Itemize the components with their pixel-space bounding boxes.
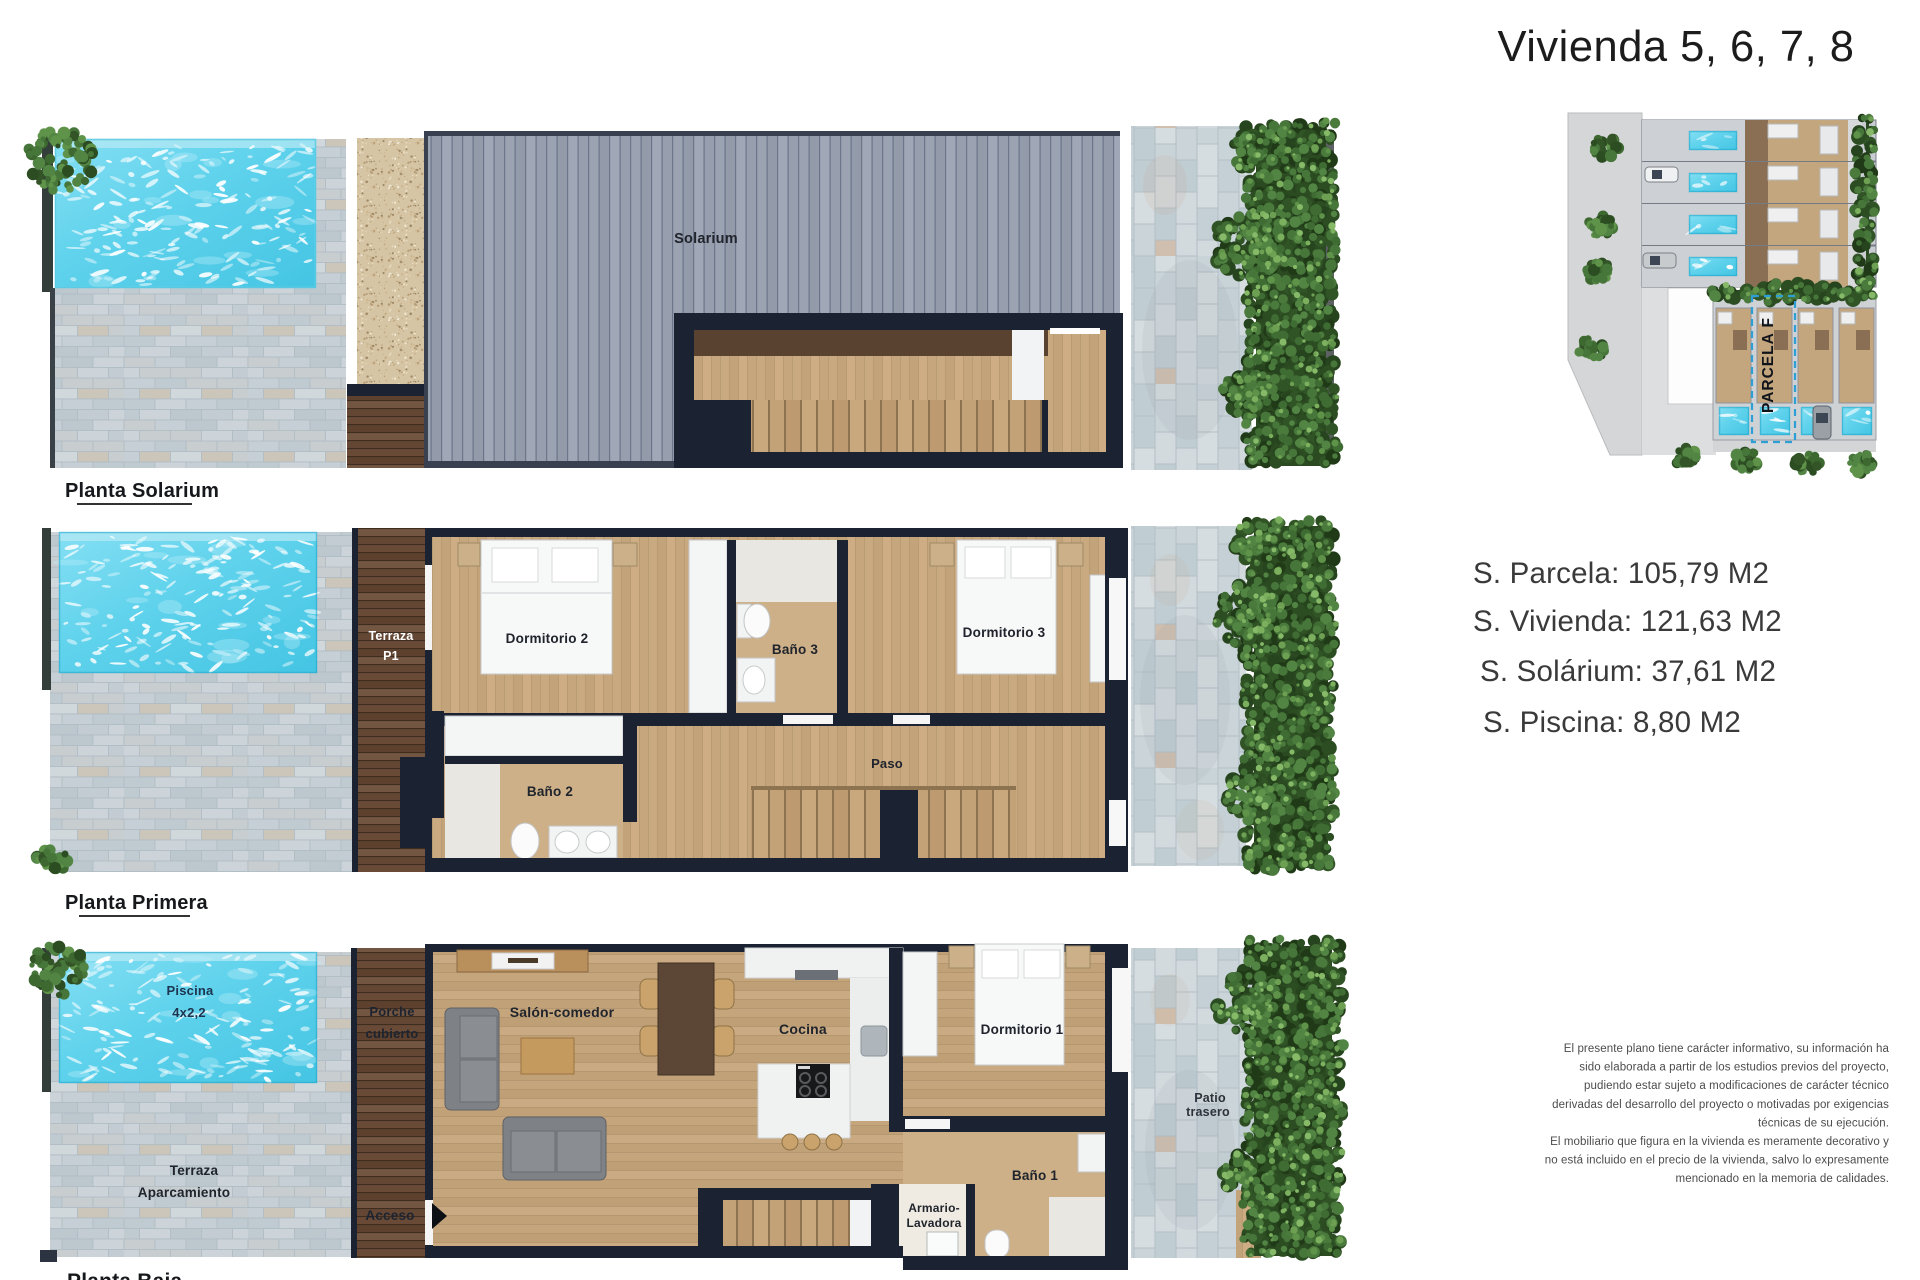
svg-text:Vivienda 5, 6, 7, 8: Vivienda 5, 6, 7, 8 [1498, 23, 1855, 71]
svg-text:Baño 1: Baño 1 [1012, 1168, 1059, 1183]
svg-text:S. Parcela: 105,79 M2: S. Parcela: 105,79 M2 [1473, 557, 1769, 590]
svg-text:Dormitorio 1: Dormitorio 1 [981, 1022, 1064, 1037]
svg-text:El mobiliario que figura en la: El mobiliario que figura en la vivienda … [1550, 1136, 1889, 1148]
svg-text:Dormitorio 3: Dormitorio 3 [963, 625, 1046, 640]
svg-text:Acceso: Acceso [365, 1208, 414, 1223]
svg-text:Paso: Paso [871, 756, 903, 771]
svg-text:Salón-comedor: Salón-comedor [510, 1004, 615, 1020]
svg-text:Porche: Porche [369, 1004, 414, 1019]
svg-text:derivadas del desarrollo del p: derivadas del desarrollo del proyecto o … [1552, 1099, 1889, 1111]
svg-text:P1: P1 [383, 649, 399, 663]
svg-text:mencionado en la memoria de ca: mencionado en la memoria de calidades. [1676, 1173, 1889, 1185]
svg-text:Lavadora: Lavadora [907, 1216, 962, 1230]
svg-text:pudiendo estar sujeto a modifi: pudiendo estar sujeto a modificaciones d… [1584, 1080, 1889, 1092]
svg-text:El presente plano tiene caráct: El presente plano tiene carácter informa… [1564, 1043, 1890, 1055]
svg-text:Armario-: Armario- [908, 1201, 960, 1215]
svg-text:PARCELA F: PARCELA F [1760, 317, 1777, 413]
svg-text:Baño 2: Baño 2 [527, 784, 573, 799]
svg-text:S. Vivienda: 121,63 M2: S. Vivienda: 121,63 M2 [1473, 605, 1782, 638]
svg-text:S. Piscina: 8,80 M2: S. Piscina: 8,80 M2 [1483, 706, 1741, 739]
svg-text:Piscina: Piscina [167, 983, 214, 998]
svg-text:4x2,2: 4x2,2 [172, 1005, 206, 1020]
svg-text:Baño 3: Baño 3 [772, 642, 819, 657]
svg-text:técnicas de su ejecución.: técnicas de su ejecución. [1758, 1117, 1889, 1129]
svg-text:Terraza: Terraza [170, 1163, 219, 1178]
svg-text:cubierto: cubierto [366, 1026, 419, 1041]
svg-text:sido elaborada a partir de los: sido elaborada a partir de los estudios … [1579, 1062, 1889, 1074]
svg-text:Planta Solarium: Planta Solarium [65, 480, 219, 502]
svg-text:Dormitorio 2: Dormitorio 2 [506, 631, 589, 646]
svg-text:Cocina: Cocina [779, 1021, 827, 1037]
svg-text:no está incluido en el precio: no está incluido en el precio de la vivi… [1545, 1155, 1889, 1167]
svg-text:S. Solárium: 37,61 M2: S. Solárium: 37,61 M2 [1480, 655, 1776, 688]
svg-text:Solarium: Solarium [674, 231, 738, 247]
svg-text:Terraza: Terraza [369, 629, 415, 643]
svg-text:Planta Primera: Planta Primera [65, 892, 209, 914]
svg-text:Planta Baja: Planta Baja [67, 1270, 183, 1280]
svg-text:Aparcamiento: Aparcamiento [138, 1185, 230, 1200]
